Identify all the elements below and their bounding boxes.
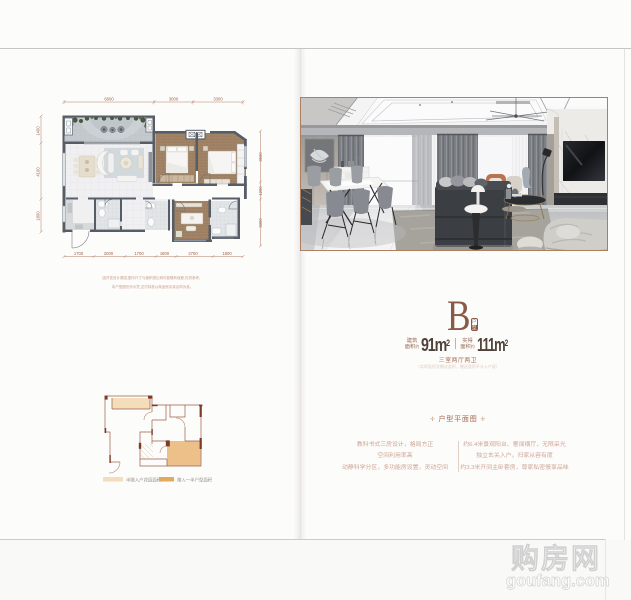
svg-text:1400: 1400 [36,126,41,136]
svg-text:3300: 3300 [258,218,263,228]
svg-text:2000: 2000 [104,251,114,256]
svg-text:3300: 3300 [213,96,223,101]
svg-text:3600: 3600 [258,152,263,162]
svg-text:1700: 1700 [74,251,84,256]
svg-text:1800: 1800 [36,211,41,221]
svg-text:1800: 1800 [222,251,232,256]
svg-text:半赠入户花园面积: 半赠入户花园面积 [126,476,162,483]
svg-text:4100: 4100 [36,167,41,177]
svg-text:3000: 3000 [169,96,179,101]
svg-text:1800: 1800 [160,251,170,256]
svg-text:6600: 6600 [104,96,114,101]
svg-text:2700: 2700 [188,251,198,256]
svg-text:1700: 1700 [134,251,144,256]
svg-text:赠入一半户型面积: 赠入一半户型面积 [177,476,213,483]
svg-text:1200: 1200 [258,186,263,196]
